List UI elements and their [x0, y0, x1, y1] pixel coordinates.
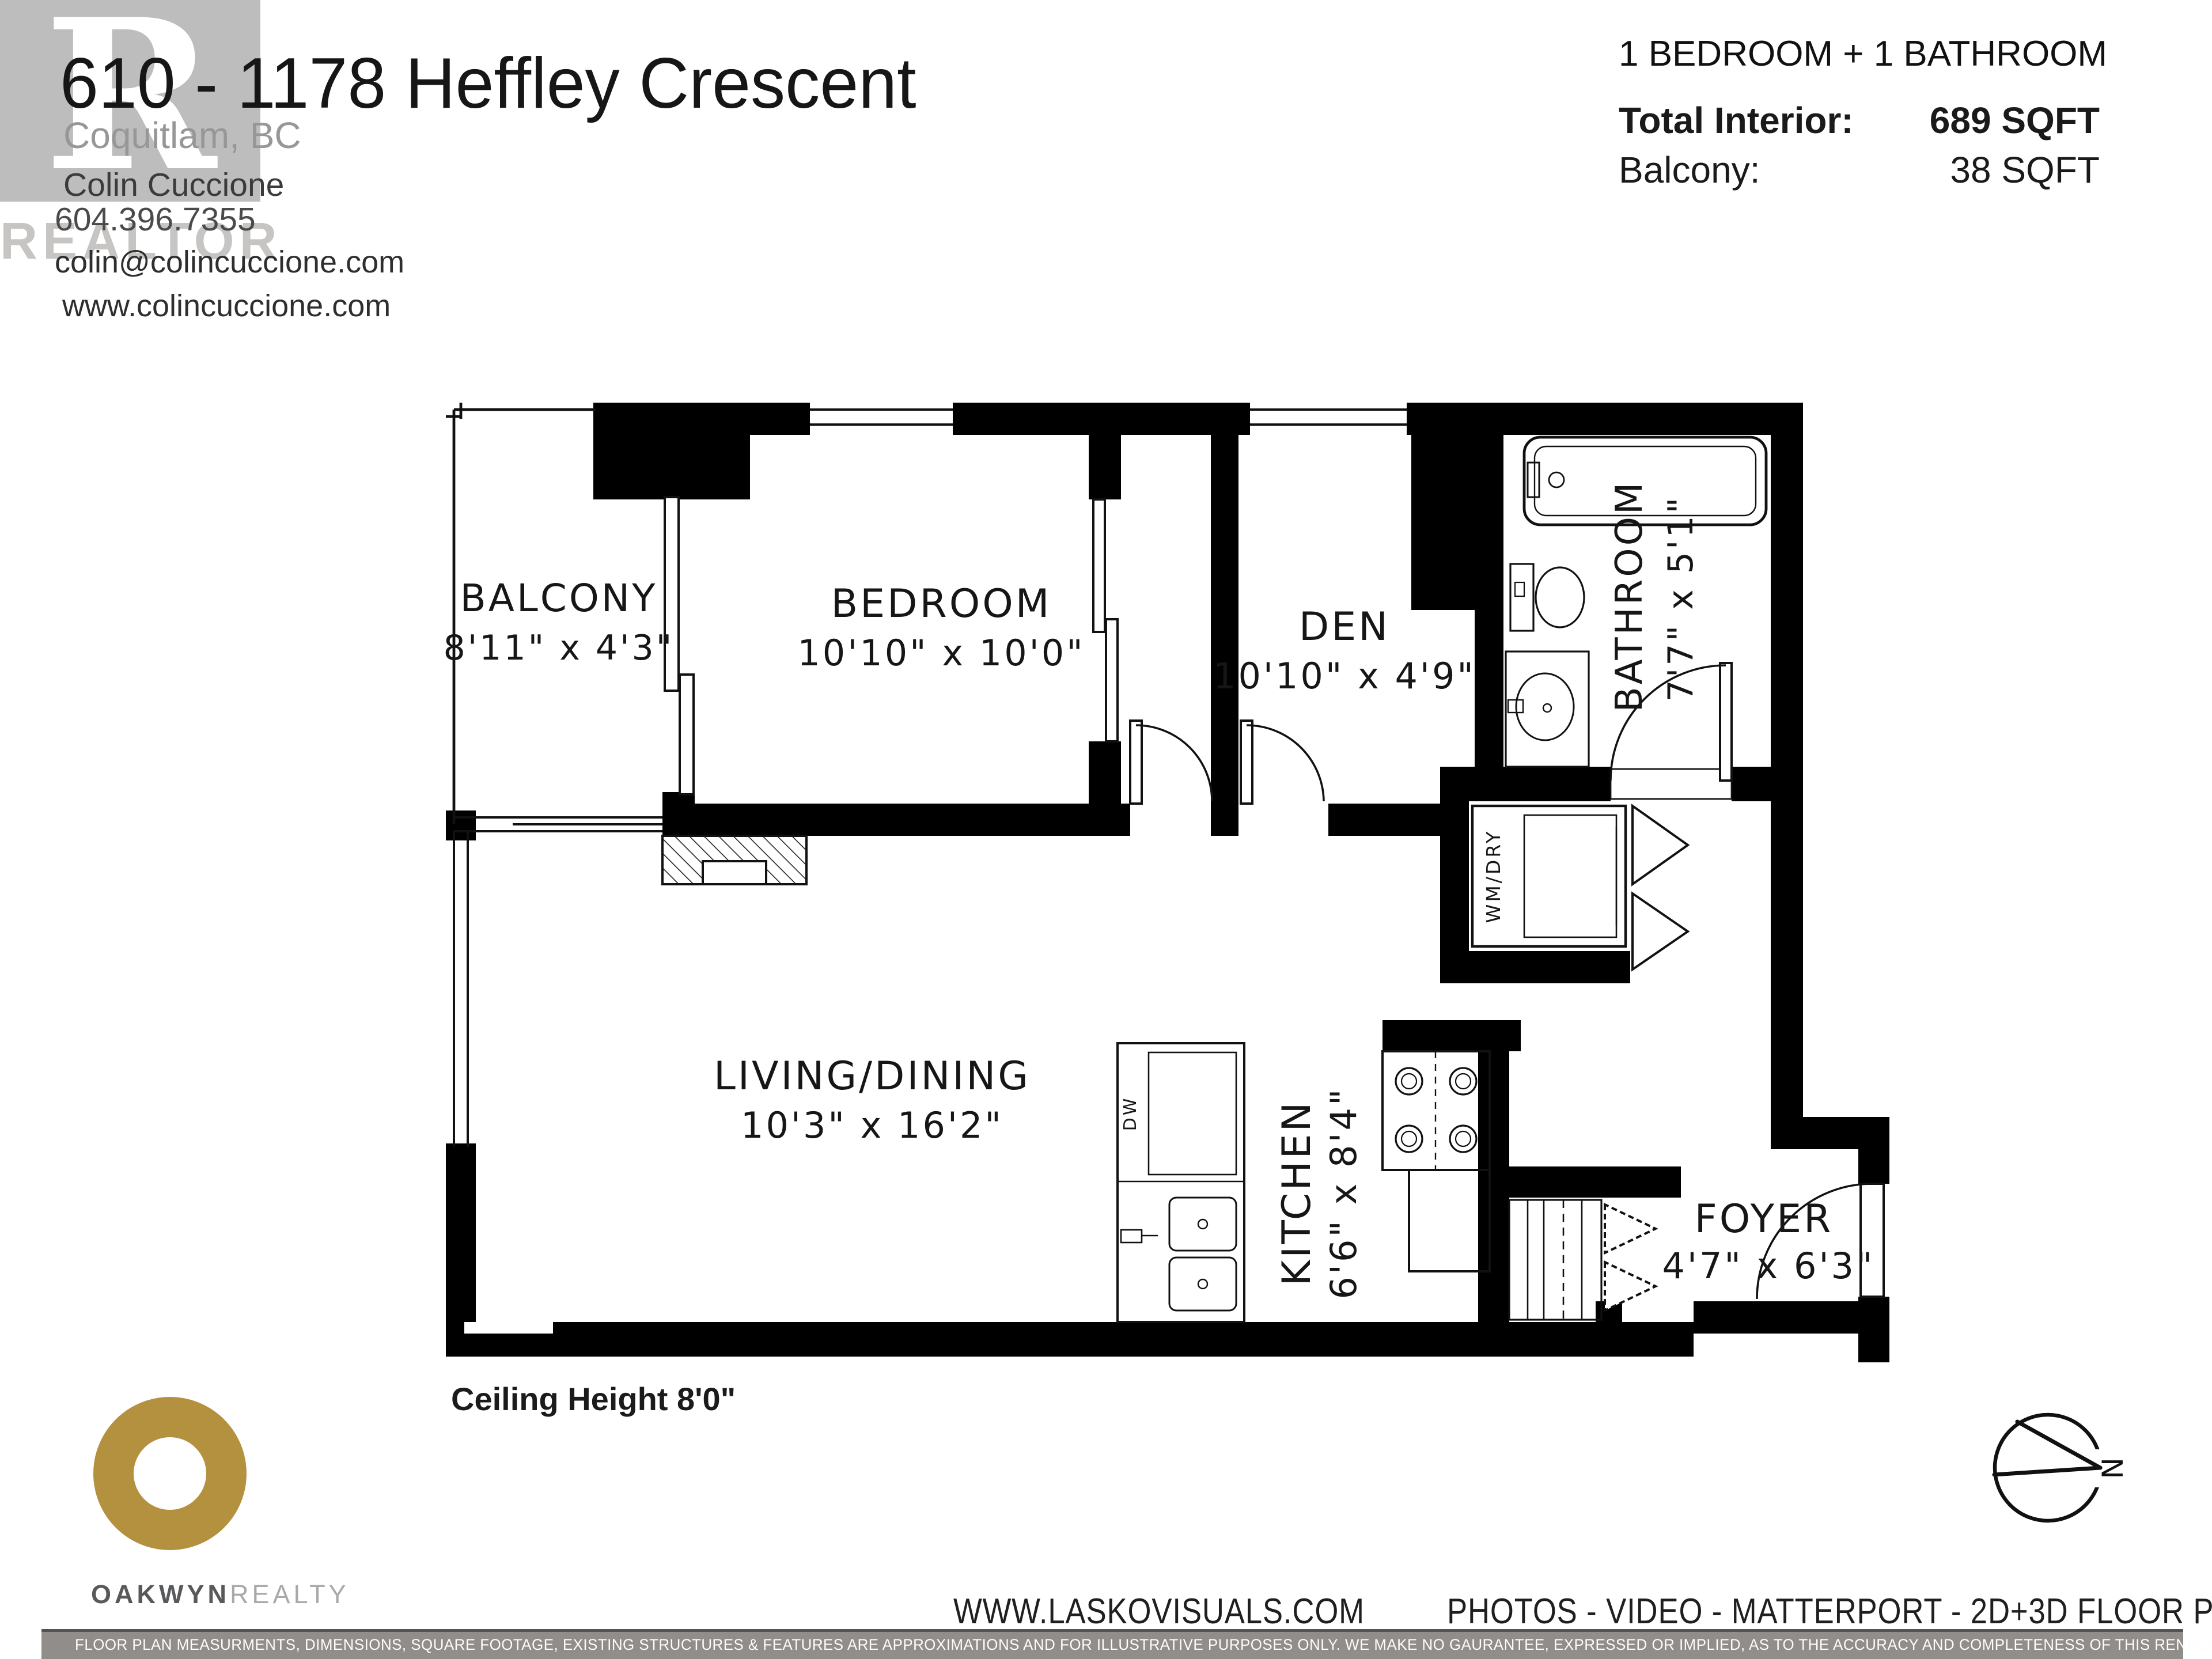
balcony-area-row: Balcony: 38 SQFT — [1619, 149, 2100, 191]
services-list-text: PHOTOS - VIDEO - MATTERPORT - 2D+3D FLOO… — [1447, 1591, 2212, 1632]
total-interior-value: 689 SQFT — [1930, 99, 2100, 142]
living-west-window — [454, 831, 468, 1147]
kitchen-label: KITCHEN — [1274, 1100, 1320, 1286]
kitchen-counter — [1118, 1043, 1244, 1322]
total-interior-label: Total Interior: — [1619, 99, 1854, 142]
foyer-closet-bifold-door-icon — [1605, 1205, 1656, 1310]
balcony-label: BALCONY — [460, 576, 658, 620]
disclaimer-bar: FLOOR PLAN MEASURMENTS, DIMENSIONS, SQUA… — [41, 1629, 2183, 1659]
dishwasher-icon — [1149, 1052, 1236, 1175]
agent-name: Colin Cuccione — [63, 166, 284, 204]
agent-phone: 604.396.7355 — [55, 200, 256, 238]
agent-website: www.colincuccione.com — [62, 288, 391, 324]
foyer-label: FOYER — [1695, 1196, 1834, 1242]
den-window — [1250, 400, 1407, 437]
den-door — [1241, 721, 1324, 804]
kitchen-sink-icon — [1121, 1198, 1236, 1310]
floor-plan: BALCONY 8'11" x 4'3" BEDROOM 10'10" x 10… — [444, 400, 1889, 1362]
foyer-closet — [1509, 1200, 1601, 1320]
oakwyn-logo-icon — [84, 1387, 256, 1560]
toilet-icon — [1510, 564, 1584, 631]
compass-icon: N — [1982, 1399, 2131, 1543]
unit-type: 1 BEDROOM + 1 BATHROOM — [1619, 33, 2107, 74]
balcony-area-label: Balcony: — [1619, 149, 1760, 191]
living-dining-label: LIVING/DINING — [714, 1054, 1031, 1099]
den-label: DEN — [1299, 604, 1390, 650]
disclaimer-text: FLOOR PLAN MEASURMENTS, DIMENSIONS, SQUA… — [75, 1636, 2212, 1654]
living-dining-dims: 10'3" x 16'2" — [741, 1104, 1003, 1146]
listing-address: 610 - 1178 Heffley Crescent — [60, 43, 916, 124]
bathroom-label: BATHROOM — [1608, 480, 1651, 712]
kitchen-base-cabinet — [1409, 1170, 1490, 1271]
bedroom-closet-slider — [1093, 499, 1118, 741]
photographer-website: WWW.LASKOVISUALS.COM — [953, 1591, 1437, 1632]
oakwyn-name: OAKWYN — [91, 1580, 230, 1609]
services-list: PHOTOS - VIDEO - MATTERPORT - 2D+3D FLOO… — [1447, 1591, 2212, 1632]
oakwyn-suffix: REALTY — [230, 1580, 350, 1609]
bedroom-label: BEDROOM — [831, 581, 1052, 627]
balcony-area-value: 38 SQFT — [1950, 149, 2100, 191]
balcony-sill-window — [454, 817, 662, 831]
bedroom-door — [1130, 721, 1212, 804]
bedroom-window — [810, 400, 953, 437]
photographer-website-text: WWW.LASKOVISUALS.COM — [953, 1591, 1365, 1632]
laundry-bifold-door-icon — [1633, 806, 1688, 969]
bathroom-dims: 7'7" x 5'1" — [1661, 495, 1701, 702]
washer-dryer-label: WM/DRY — [1482, 829, 1505, 923]
stove-icon — [1382, 1051, 1490, 1170]
den-dims: 10'10" x 4'9" — [1213, 655, 1476, 697]
listing-city: Coquitlam, BC — [63, 114, 301, 157]
agent-email: colin@colincuccione.com — [55, 244, 404, 280]
oakwyn-brand-name: OAKWYNREALTY — [91, 1580, 350, 1609]
bedroom-dims: 10'10" x 10'0" — [797, 632, 1085, 674]
bathroom-sink-icon — [1506, 652, 1589, 767]
wall-step — [464, 1322, 553, 1334]
kitchen-dims: 6'6" x 8'4" — [1323, 1086, 1365, 1299]
ceiling-height-note: Ceiling Height 8'0" — [451, 1380, 736, 1418]
structural-column — [662, 836, 806, 884]
foyer-dims: 4'7" x 6'3" — [1662, 1245, 1874, 1287]
dishwasher-label: DW — [1120, 1096, 1141, 1131]
total-interior-row: Total Interior: 689 SQFT — [1619, 99, 2100, 142]
compass-north-label: N — [2095, 1457, 2128, 1479]
balcony-dims: 8'11" x 4'3" — [444, 628, 674, 668]
